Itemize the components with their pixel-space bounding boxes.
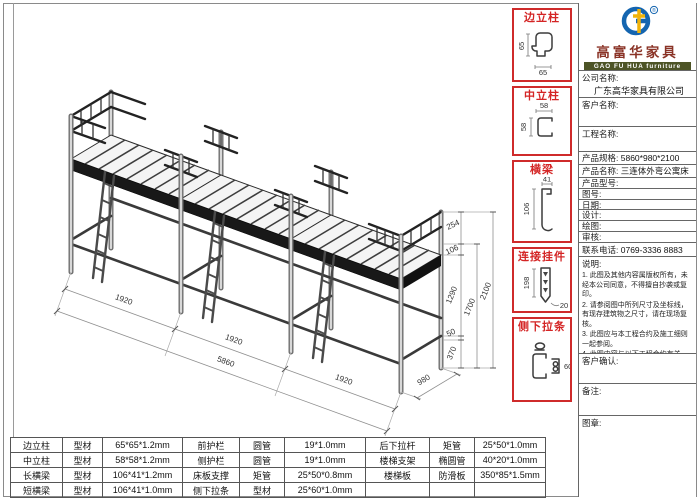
svg-text:58: 58 <box>540 103 548 110</box>
table-cell: 矩管 <box>240 468 285 483</box>
table-cell: 中立柱 <box>11 453 63 468</box>
svg-text:41: 41 <box>543 177 551 184</box>
dim-1290: 1290 <box>444 285 459 305</box>
gfh-logo-icon: ® <box>612 4 664 38</box>
note-item: 1. 此图及其他内容属版权所有，未经本公司同意，不得擅自抄袭或复印。 <box>582 271 693 300</box>
phone-row: 联系电话: 0769-3336 8883 <box>579 243 696 257</box>
product-name-row: 产品名称: 三连体外弯公寓床 <box>579 165 696 178</box>
table-cell: 楼梯支架 <box>366 453 430 468</box>
length-dimensions: 1920 1920 1920 5860 <box>54 272 401 436</box>
table-cell: 床板支撑 <box>183 468 240 483</box>
profile-title-side-tie: 侧下拉条 <box>514 319 570 334</box>
beam-section-icon: 41 106 <box>514 177 570 239</box>
product-name-value: 三连体外弯公寓床 <box>621 166 689 176</box>
table-cell: 楼梯板 <box>366 468 430 483</box>
title-block: ® 高富华家具 GAO FU HUA furniture 公司名称: 广东高华家… <box>578 3 696 497</box>
audit-row: 审核: <box>579 232 696 243</box>
date-row: 日期: <box>579 200 696 210</box>
notes-title: 说明: <box>582 258 693 270</box>
table-cell: 矩管 <box>430 438 475 453</box>
phone-value: 0769-3336 8883 <box>621 245 683 255</box>
notes-block: 说明: 1. 此图及其他内容属版权所有，未经本公司同意，不得擅自抄袭或复印。 2… <box>579 257 696 354</box>
table-cell: 19*1.0mm <box>285 438 366 453</box>
profile-box-center-column: 中立柱 58 58 <box>512 86 572 156</box>
table-cell: 短横梁 <box>11 483 63 498</box>
profile-column: 边立柱 65 65 中立柱 58 58 横梁 41 <box>512 0 576 436</box>
table-row: 边立柱 型材 65*65*1.2mm 前护栏 圆管 19*1.0mm 后下拉杆 … <box>11 438 546 453</box>
project-name-row: 工程名称: <box>579 127 696 152</box>
dim-1920-3: 1920 <box>334 372 354 387</box>
table-cell: 型材 <box>240 483 285 498</box>
dim-1920-1: 1920 <box>114 292 134 307</box>
dim-1920-2: 1920 <box>224 332 244 347</box>
table-cell: 19*1.0mm <box>285 453 366 468</box>
table-row: 长横梁 型材 106*41*1.2mm 床板支撑 矩管 25*50*0.8mm … <box>11 468 546 483</box>
table-row: 中立柱 型材 58*58*1.2mm 侧护栏 圆管 19*1.0mm 楼梯支架 … <box>11 453 546 468</box>
drawing-sheet: 1920 1920 1920 5860 980 25 <box>0 0 700 500</box>
svg-text:®: ® <box>652 7 656 14</box>
dim-5860: 5860 <box>216 354 236 369</box>
table-cell: 前护栏 <box>183 438 240 453</box>
svg-text:58: 58 <box>519 123 528 131</box>
dim-370: 370 <box>445 345 459 361</box>
table-cell: 圆管 <box>240 438 285 453</box>
brand-name-cn: 高富华家具 <box>582 41 693 61</box>
draft-row: 绘图: <box>579 221 696 232</box>
isometric-bed-drawing: 1920 1920 1920 5860 980 25 <box>13 2 511 436</box>
svg-text:106: 106 <box>522 203 531 216</box>
dim-1700: 1700 <box>462 297 477 317</box>
note-item: 3. 此图应与本工程合约及施工细则一起参阅。 <box>582 330 693 349</box>
dim-50: 50 <box>445 327 457 339</box>
table-cell: 椭圆管 <box>430 453 475 468</box>
customer-name-row: 客户名称: <box>579 98 696 127</box>
table-cell: 65*65*1.2mm <box>103 438 183 453</box>
brand-name-en: GAO FU HUA furniture <box>584 62 691 71</box>
profile-title-connector: 连接挂件 <box>514 249 570 264</box>
table-cell: 侧护栏 <box>183 453 240 468</box>
side-tie-section-icon: 60 <box>514 334 570 396</box>
table-cell: 防滑板 <box>430 468 475 483</box>
table-cell: 40*20*1.0mm <box>475 453 546 468</box>
seal-row: 图章: <box>579 416 696 496</box>
profile-title-edge-column: 边立柱 <box>514 10 570 25</box>
table-cell <box>430 483 475 498</box>
table-cell: 边立柱 <box>11 438 63 453</box>
dim-106: 106 <box>444 243 460 257</box>
customer-confirm-row: 客户确认: <box>579 354 696 384</box>
table-cell: 106*41*1.0mm <box>103 483 183 498</box>
center-column-section-icon: 58 58 <box>514 103 570 151</box>
depth-dimension: 980 <box>401 368 461 400</box>
edge-column-section-icon: 65 65 <box>514 25 570 77</box>
product-model-row: 产品型号: <box>579 178 696 189</box>
table-cell: 型材 <box>63 483 103 498</box>
height-dimensions: 254 106 1290 50 370 1700 2100 <box>441 212 496 368</box>
profile-box-beam: 横梁 41 106 <box>512 160 572 243</box>
table-cell <box>366 483 430 498</box>
parts-table: 边立柱 型材 65*65*1.2mm 前护栏 圆管 19*1.0mm 后下拉杆 … <box>10 437 546 498</box>
remark-row: 备注: <box>579 384 696 416</box>
product-spec-row: 产品规格: 5860*980*2100 <box>579 152 696 165</box>
profile-box-connector: 连接挂件 198 20 <box>512 247 572 313</box>
company-name-row: 公司名称: 广东高华家具有限公司 <box>579 71 696 98</box>
table-cell: 25*50*1.0mm <box>475 438 546 453</box>
table-cell: 型材 <box>63 453 103 468</box>
svg-text:65: 65 <box>539 68 547 77</box>
table-cell: 25*60*1.0mm <box>285 483 366 498</box>
table-cell: 型材 <box>63 438 103 453</box>
company-logo: ® 高富华家具 GAO FU HUA furniture <box>579 3 696 71</box>
profile-title-beam: 横梁 <box>514 162 570 177</box>
table-cell: 106*41*1.2mm <box>103 468 183 483</box>
product-spec-value: 5860*980*2100 <box>621 153 680 163</box>
svg-text:65: 65 <box>517 42 526 50</box>
table-cell: 后下拉杆 <box>366 438 430 453</box>
table-cell: 25*50*0.8mm <box>285 468 366 483</box>
table-cell: 侧下拉条 <box>183 483 240 498</box>
dim-2100: 2100 <box>478 281 493 301</box>
dim-254: 254 <box>445 218 461 232</box>
dim-980: 980 <box>416 372 433 387</box>
profile-box-side-tie: 侧下拉条 60 <box>512 317 572 402</box>
svg-text:60: 60 <box>564 362 570 371</box>
table-row: 短横梁 型材 106*41*1.0mm 侧下拉条 型材 25*60*1.0mm <box>11 483 546 498</box>
svg-text:20: 20 <box>560 301 568 310</box>
table-cell: 圆管 <box>240 453 285 468</box>
company-name-value: 广东高华家具有限公司 <box>594 84 693 97</box>
table-cell: 350*85*1.5mm <box>475 468 546 483</box>
note-item: 2. 请参阅图中所列尺寸及坐标线，有现存建筑物之尺寸，请在现场复核。 <box>582 301 693 330</box>
table-cell: 型材 <box>63 468 103 483</box>
table-cell <box>475 483 546 498</box>
connector-hook-icon: 198 20 <box>514 264 570 310</box>
table-cell: 58*58*1.2mm <box>103 453 183 468</box>
profile-box-edge-column: 边立柱 65 65 <box>512 8 572 82</box>
design-row: 设计: <box>579 210 696 221</box>
profile-title-center-column: 中立柱 <box>514 88 570 103</box>
figure-number-row: 图号: <box>579 189 696 200</box>
svg-text:198: 198 <box>522 277 531 290</box>
table-cell: 长横梁 <box>11 468 63 483</box>
